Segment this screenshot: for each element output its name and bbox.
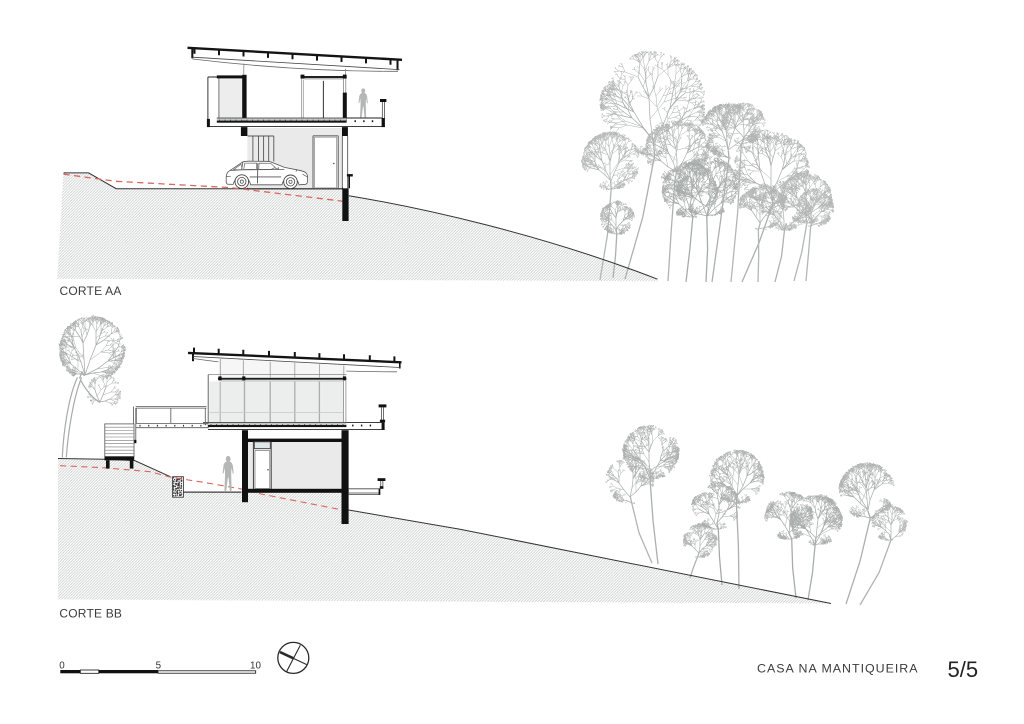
svg-text:5: 5 — [156, 660, 162, 671]
svg-text:CORTE AA: CORTE AA — [60, 284, 122, 298]
svg-text:5/5: 5/5 — [948, 657, 979, 682]
svg-text:CORTE BB: CORTE BB — [59, 607, 122, 621]
svg-text:10: 10 — [250, 660, 261, 671]
svg-text:CASA NA MANTIQUEIRA: CASA NA MANTIQUEIRA — [757, 661, 919, 675]
svg-text:0: 0 — [59, 660, 65, 671]
